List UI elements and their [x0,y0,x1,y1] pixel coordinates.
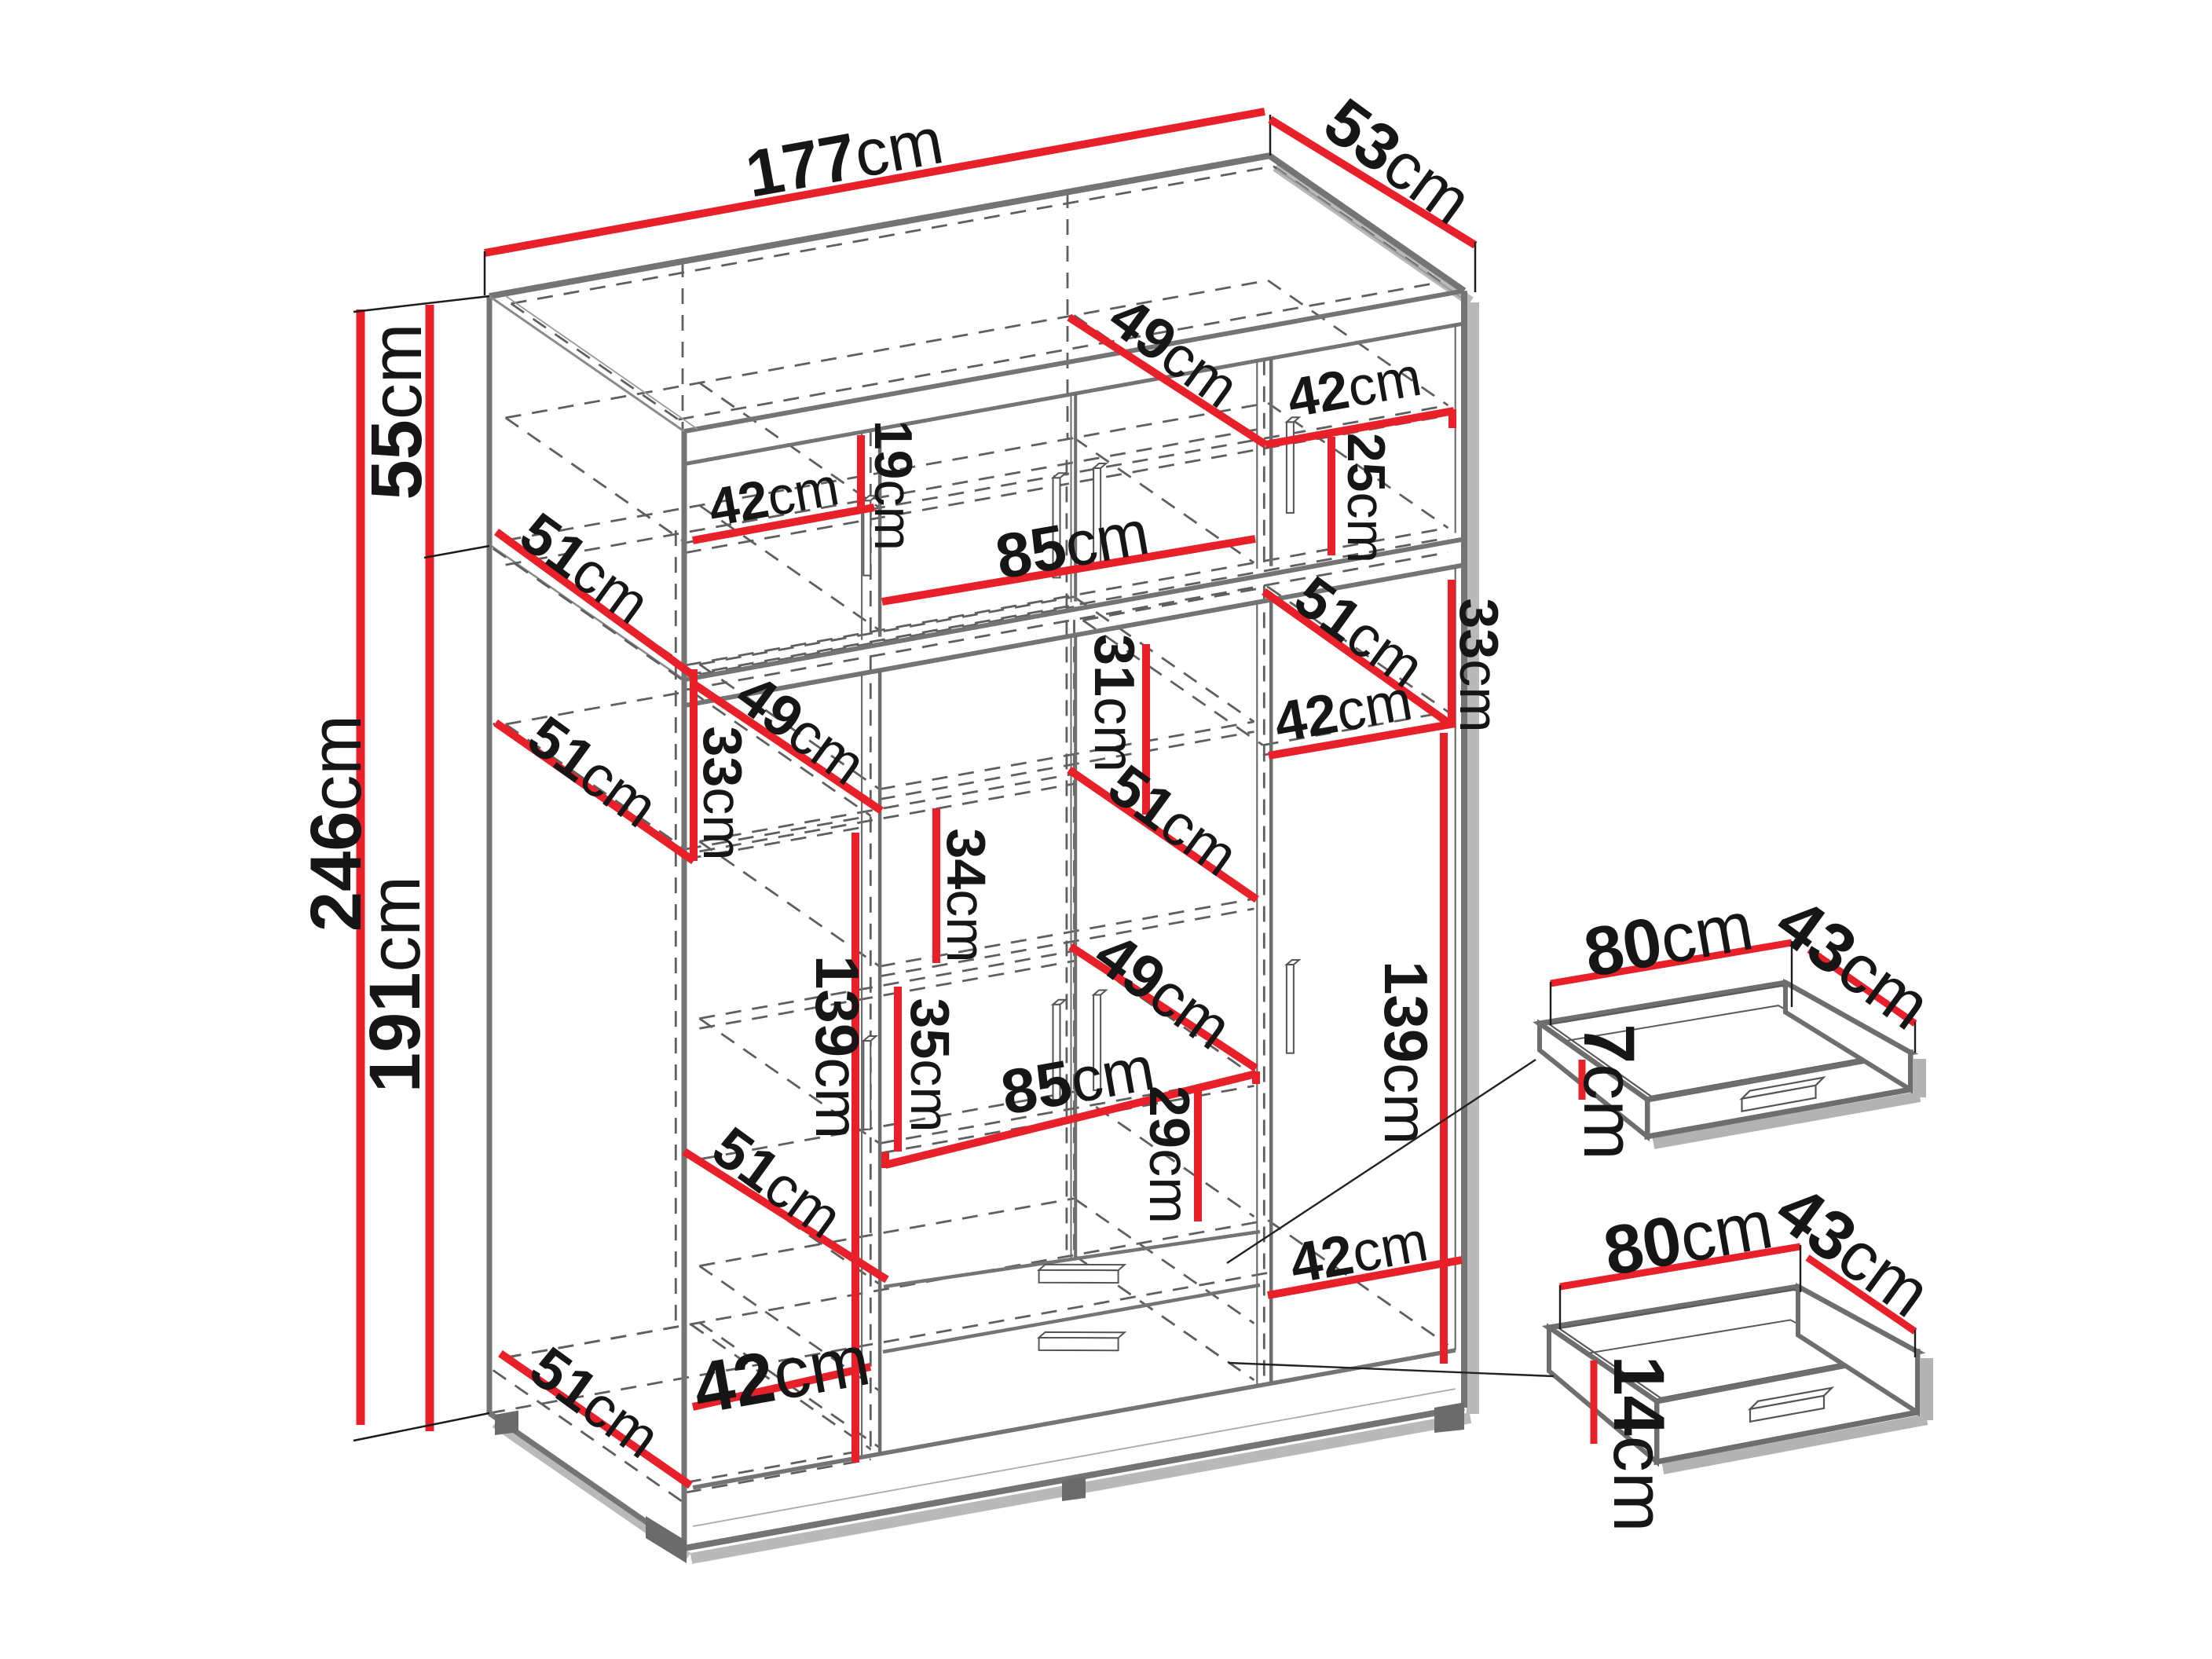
svg-text:33cm: 33cm [1448,598,1510,732]
svg-text:14cm: 14cm [1599,1356,1679,1533]
svg-text:139cm: 139cm [1372,961,1441,1144]
svg-text:33cm: 33cm [692,726,753,860]
svg-text:29cm: 29cm [1137,1086,1200,1224]
svg-text:191cm: 191cm [355,876,435,1093]
svg-text:25cm: 25cm [1336,433,1396,563]
svg-text:34cm: 34cm [936,828,997,962]
svg-text:55cm: 55cm [357,324,437,500]
svg-text:19cm: 19cm [863,420,923,551]
svg-text:139cm: 139cm [803,955,872,1139]
svg-text:7cm: 7cm [1569,1024,1649,1160]
svg-text:35cm: 35cm [899,998,961,1132]
